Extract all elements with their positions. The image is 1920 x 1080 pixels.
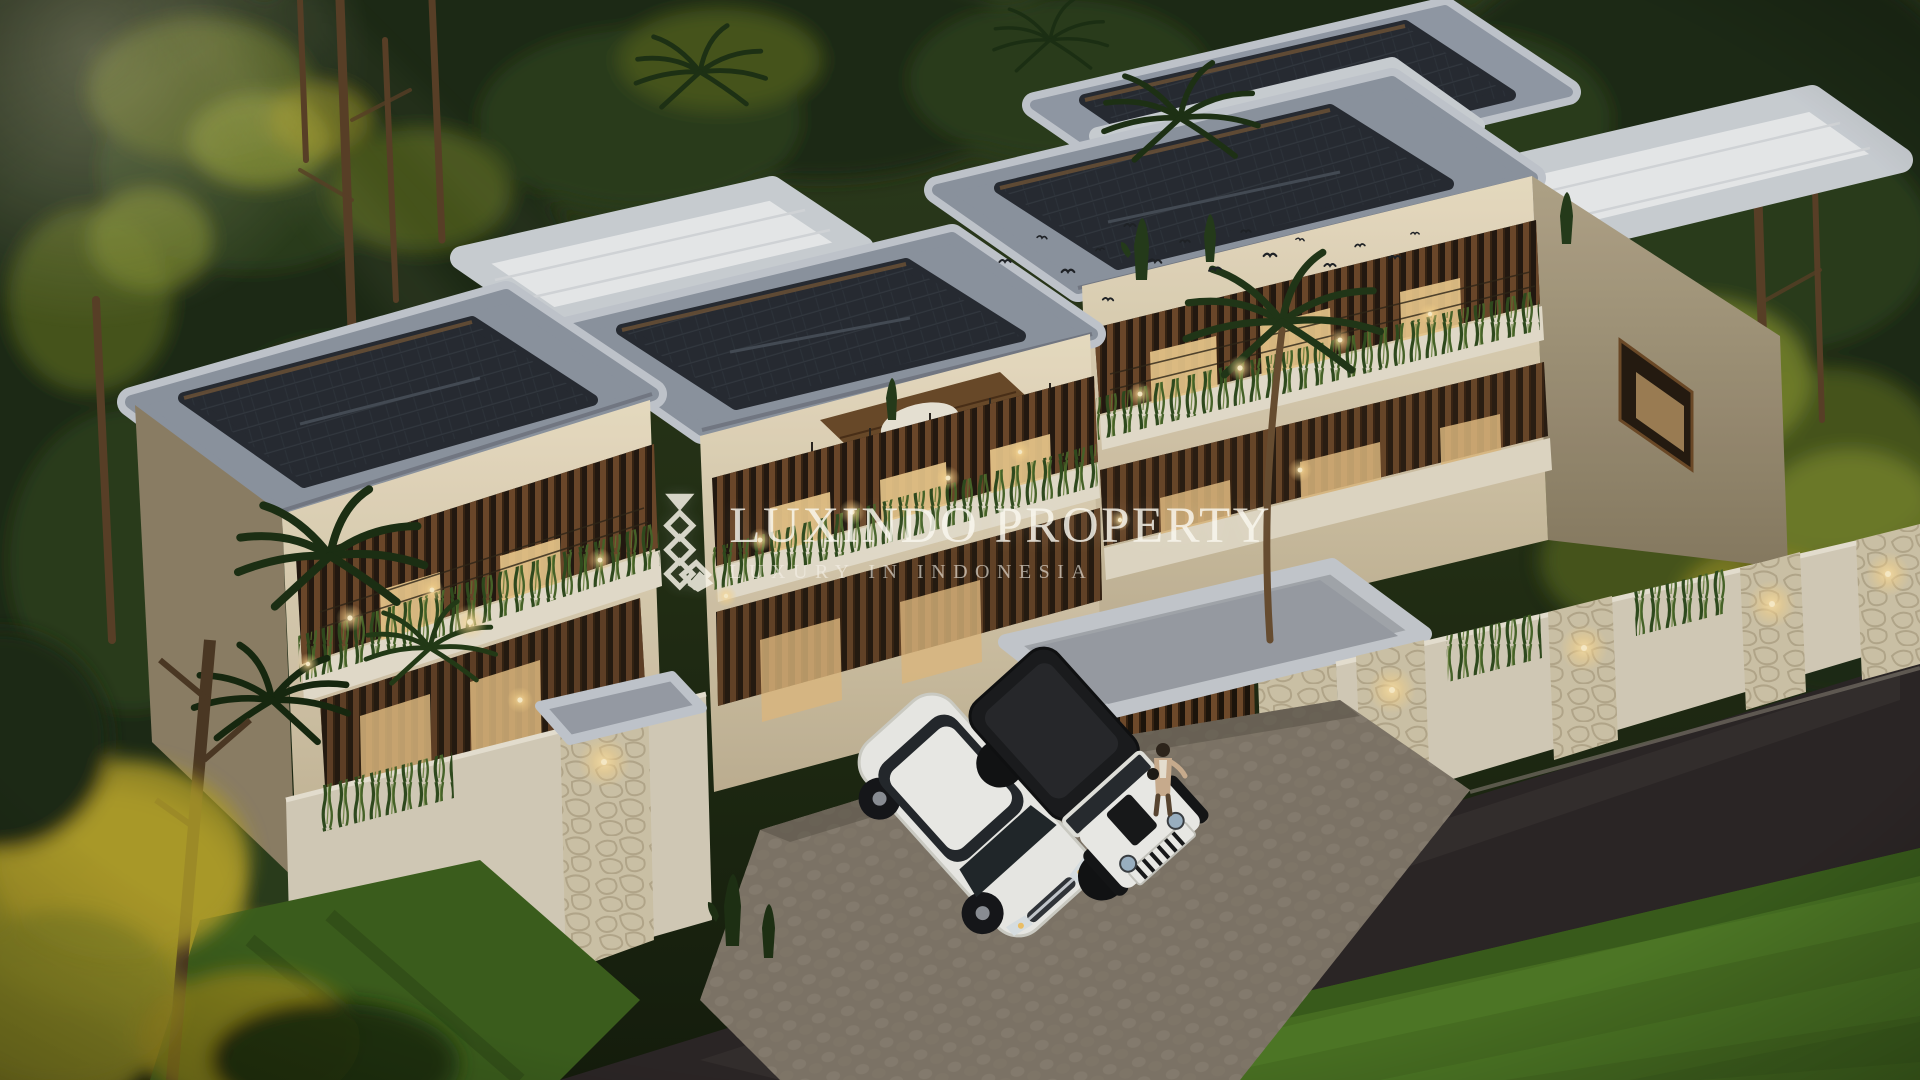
scene-art	[0, 0, 1920, 1080]
vignette	[0, 0, 1920, 1080]
render-canvas: LUXINDO PROPERTY LUXURY IN INDONESIA	[0, 0, 1920, 1080]
